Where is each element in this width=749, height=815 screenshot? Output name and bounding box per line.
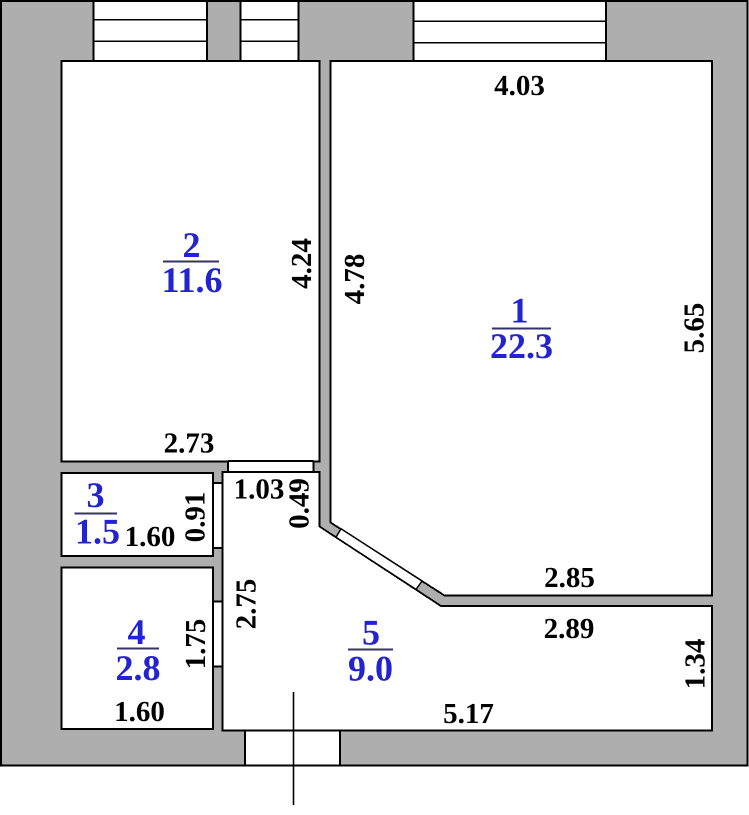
svg-text:2.73: 2.73: [164, 428, 215, 460]
svg-text:2.85: 2.85: [544, 562, 595, 594]
svg-text:1.60: 1.60: [114, 696, 165, 728]
svg-text:11.6: 11.6: [161, 260, 222, 300]
svg-text:1: 1: [511, 291, 529, 331]
svg-text:2.75: 2.75: [231, 579, 263, 630]
svg-text:22.3: 22.3: [490, 326, 553, 366]
svg-text:5.17: 5.17: [443, 698, 494, 730]
svg-text:1.34: 1.34: [680, 639, 712, 690]
svg-text:2: 2: [183, 225, 201, 265]
svg-text:4.24: 4.24: [286, 238, 318, 289]
svg-text:0.91: 0.91: [180, 492, 212, 543]
svg-text:1.60: 1.60: [125, 521, 176, 553]
svg-text:1.03: 1.03: [234, 474, 285, 506]
svg-text:5: 5: [362, 613, 380, 653]
svg-text:1.5: 1.5: [75, 512, 120, 552]
svg-text:9.0: 9.0: [348, 649, 393, 689]
svg-text:4: 4: [128, 612, 146, 652]
svg-text:0.49: 0.49: [284, 478, 316, 529]
svg-text:5.65: 5.65: [679, 303, 711, 354]
svg-text:2.89: 2.89: [544, 613, 595, 645]
svg-text:2.8: 2.8: [116, 648, 161, 688]
svg-text:1.75: 1.75: [180, 619, 212, 670]
svg-text:3: 3: [87, 475, 105, 515]
svg-text:4.03: 4.03: [494, 70, 545, 102]
svg-text:4.78: 4.78: [339, 254, 371, 305]
